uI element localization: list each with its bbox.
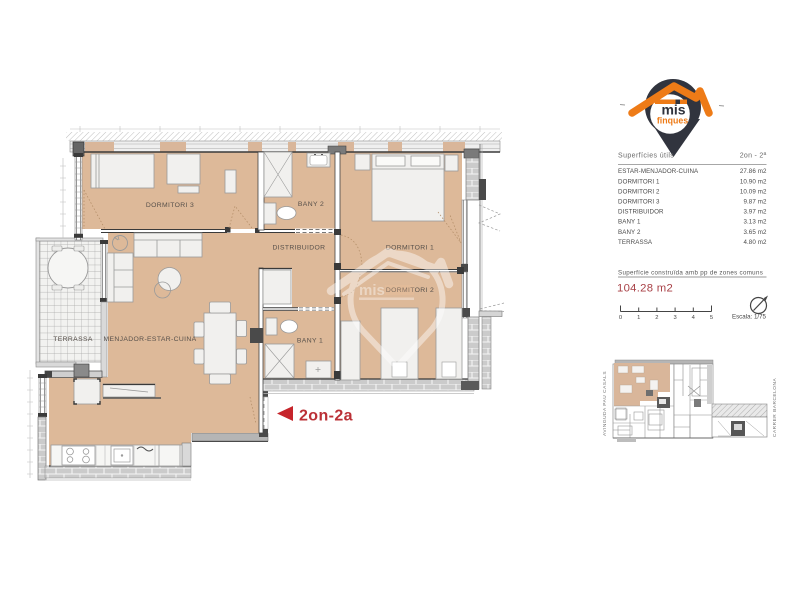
svg-text:4.80 m2: 4.80 m2: [743, 239, 767, 246]
svg-text:2on - 2ª: 2on - 2ª: [740, 153, 767, 160]
svg-text:104.28 m2: 104.28 m2: [617, 283, 673, 295]
svg-text:DORMITORI 1: DORMITORI 1: [618, 178, 660, 185]
svg-text:27.86 m2: 27.86 m2: [740, 168, 767, 175]
svg-text:mis: mis: [359, 282, 385, 299]
svg-text:DORMITORI 2: DORMITORI 2: [618, 188, 660, 195]
svg-text:3.97 m2: 3.97 m2: [743, 209, 767, 216]
svg-text:TERRASSA: TERRASSA: [618, 239, 653, 246]
svg-text:BANY 1: BANY 1: [297, 338, 323, 345]
svg-text:5: 5: [710, 315, 713, 321]
svg-text:TERRASSA: TERRASSA: [53, 336, 93, 343]
svg-text:DISTRIBUIDOR: DISTRIBUIDOR: [618, 209, 664, 216]
svg-text:DORMITORI 3: DORMITORI 3: [618, 199, 660, 206]
svg-text:Escala: 1/75: Escala: 1/75: [732, 314, 767, 321]
svg-text:MENJADOR-ESTAR-CUINA: MENJADOR-ESTAR-CUINA: [104, 336, 197, 343]
svg-text:2: 2: [655, 315, 658, 321]
svg-text:Superfícies útils: Superfícies útils: [618, 153, 674, 160]
svg-text:3.65 m2: 3.65 m2: [743, 229, 767, 236]
svg-text:DORMITORI 3: DORMITORI 3: [146, 202, 194, 209]
svg-text:AVINGUDA PAU CASALS: AVINGUDA PAU CASALS: [602, 371, 608, 436]
svg-text:9.87 m2: 9.87 m2: [743, 199, 767, 206]
svg-text:3.13 m2: 3.13 m2: [743, 219, 767, 226]
svg-text:BANY 1: BANY 1: [618, 219, 641, 226]
svg-text:10.90 m2: 10.90 m2: [740, 178, 767, 185]
svg-text:3: 3: [673, 315, 676, 321]
svg-text:CARRER BARCELONA: CARRER BARCELONA: [772, 378, 778, 437]
svg-text:Superfície construïda amb pp d: Superfície construïda amb pp de zones co…: [618, 270, 763, 277]
svg-text:ESTAR-MENJADOR-CUINA: ESTAR-MENJADOR-CUINA: [618, 168, 699, 175]
svg-text:0: 0: [619, 315, 622, 321]
svg-text:finques: finques: [657, 116, 688, 126]
svg-text:1: 1: [637, 315, 640, 321]
svg-text:BANY 2: BANY 2: [298, 201, 324, 208]
svg-text:DISTRIBUIDOR: DISTRIBUIDOR: [273, 245, 326, 252]
svg-text:BANY 2: BANY 2: [618, 229, 641, 236]
svg-text:2on-2a: 2on-2a: [299, 408, 353, 425]
svg-text:10.09 m2: 10.09 m2: [740, 188, 767, 195]
